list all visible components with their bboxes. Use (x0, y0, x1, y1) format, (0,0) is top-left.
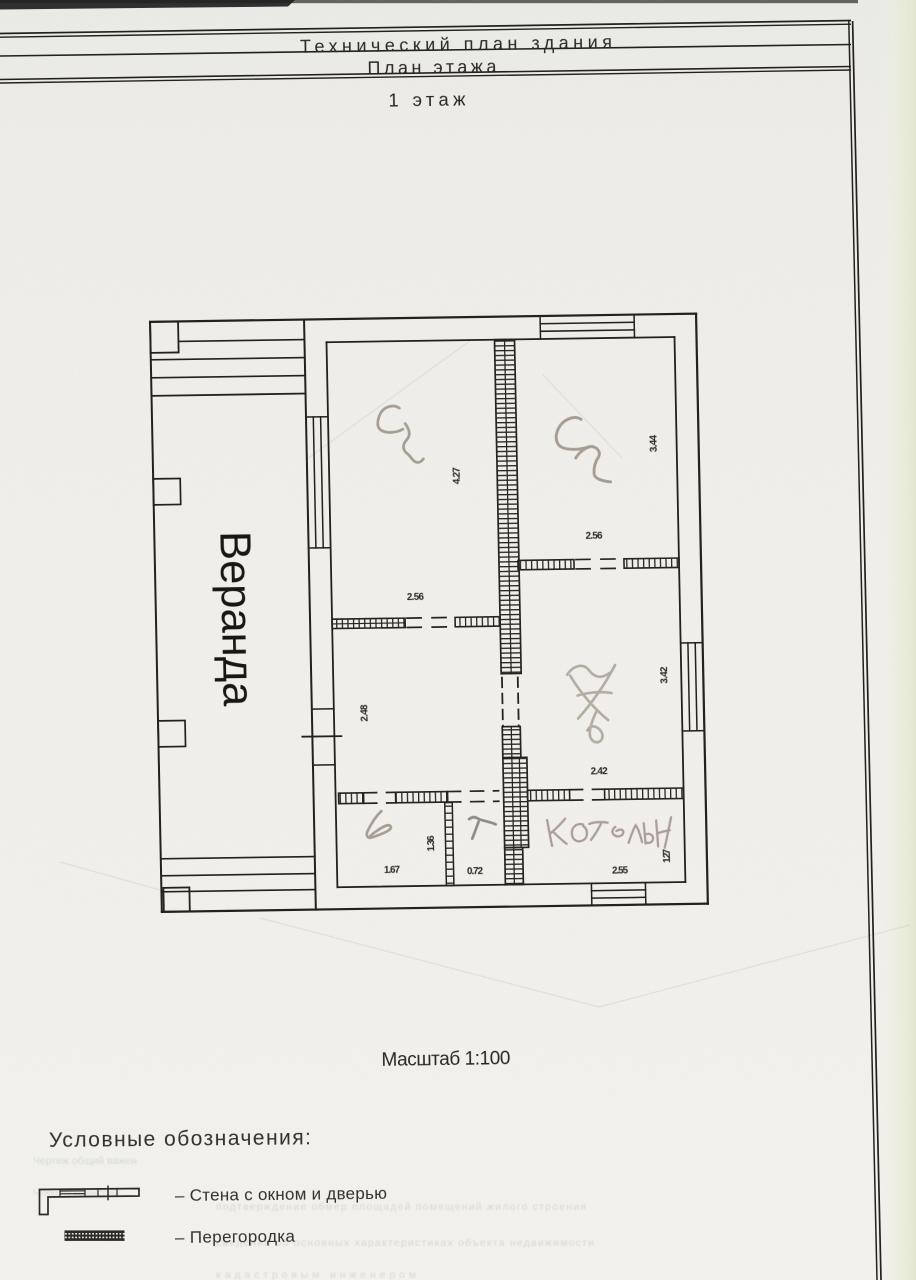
svg-text:2.56: 2.56 (585, 531, 603, 542)
svg-text:Условные обозначения:: Условные обозначения: (49, 1126, 311, 1152)
svg-text:1.36: 1.36 (426, 835, 437, 852)
svg-text:2.48: 2.48 (359, 704, 370, 722)
svg-text:– Стена с окном и дверью: – Стена с окном и дверью (175, 1184, 387, 1205)
svg-text:2.42: 2.42 (591, 766, 609, 777)
svg-text:1.27: 1.27 (662, 848, 673, 863)
svg-text:2.55: 2.55 (612, 865, 629, 876)
svg-text:– Перегородка: – Перегородка (175, 1227, 296, 1247)
svg-text:0.72: 0.72 (467, 866, 484, 877)
svg-text:4.27: 4.27 (452, 467, 463, 485)
svg-text:Веранда: Веранда (210, 531, 262, 708)
svg-text:Масштаб 1:100: Масштаб 1:100 (381, 1048, 510, 1071)
svg-text:3.42: 3.42 (659, 666, 670, 684)
svg-text:2.56: 2.56 (407, 592, 425, 603)
svg-text:1.67: 1.67 (384, 865, 401, 876)
svg-text:3.44: 3.44 (648, 434, 659, 452)
svg-text:Чертеж общий важен: Чертеж общий важен (33, 1155, 137, 1167)
